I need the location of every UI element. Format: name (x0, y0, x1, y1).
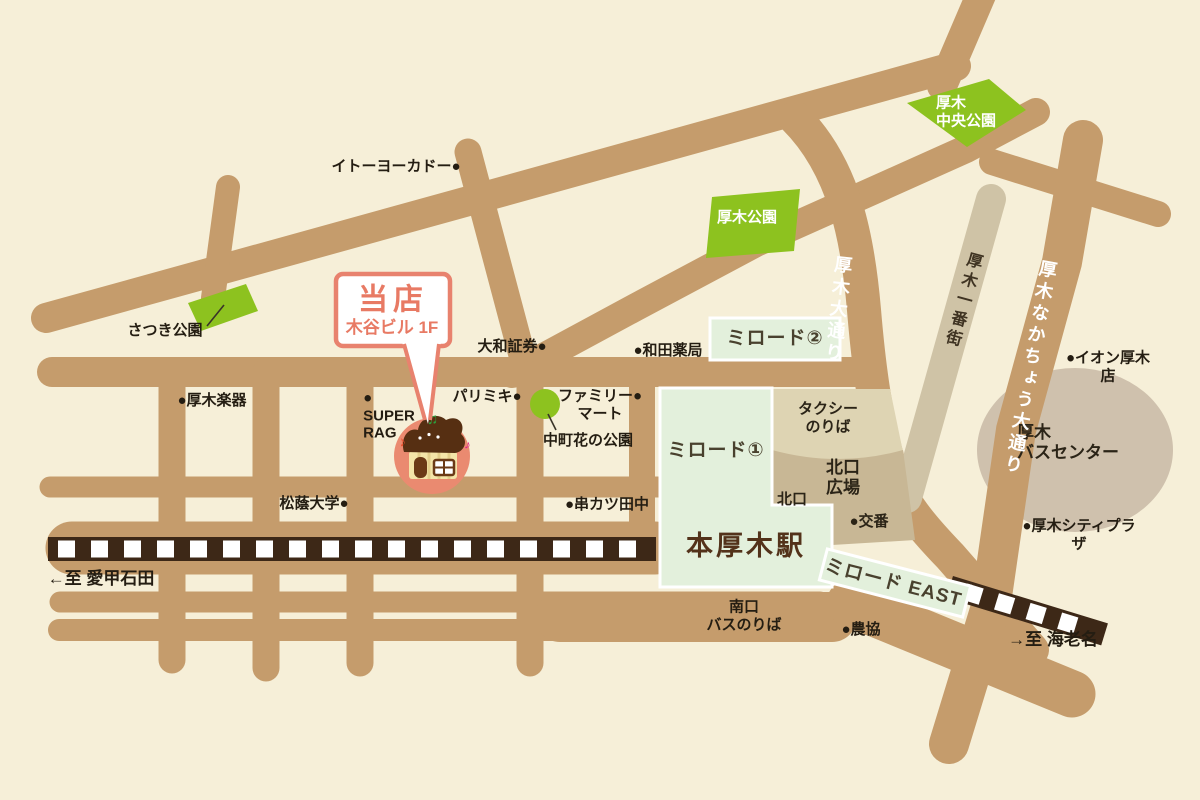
label-minamiguchi-bus: 南口 バスのりば (706, 598, 781, 633)
label-atsugi-city-plaza: ●厚木シティプラザ (1019, 517, 1140, 552)
label-kushikatsu-tanaka: ●串カツ田中 (565, 496, 649, 514)
label-nokyo: ●農協 (841, 621, 880, 639)
label-miload-east: ミロード EAST (822, 556, 964, 613)
label-kitaguchi-hiroba: 北口 広場 (826, 458, 860, 498)
label-kitaguchi: 北口 (777, 491, 807, 509)
label-atsugi-ichibangai: 厚木一番街 (939, 249, 983, 350)
label-miload2: ミロード② (726, 328, 823, 350)
label-atsugi-chuo-park: 厚木 中央公園 (936, 94, 996, 129)
label-honatsugi-station: 本厚木駅 (686, 531, 806, 563)
label-ito-yokado: イトーヨーカドー● (331, 158, 460, 176)
label-to-aikoishida: ←至 愛甲石田 (48, 569, 155, 589)
label-atsugi-gakki: ●厚木楽器 (177, 392, 246, 410)
label-satsuki-park: さつき公園 (127, 322, 202, 340)
label-callout-main: 当店 (358, 282, 428, 317)
label-nakacho-hana-park: 中町花の公園 (543, 432, 633, 450)
label-taxi-noriba: タクシー のりば (798, 400, 858, 435)
label-super-rag: ● SUPER RAG (363, 389, 415, 442)
label-aeon-atsugi: ●イオン厚木店 (1062, 349, 1154, 384)
label-layer: イトーヨーカドー●さつき公園大和証券●●和田薬局●厚木楽器● SUPER RAG… (0, 0, 1200, 800)
label-callout-sub: 木谷ビル 1F (346, 318, 439, 338)
label-atsugi-park: 厚木公園 (717, 209, 777, 227)
access-map: ♪ ♫ ♪ イトーヨーカドー●さつき公園大和証券●●和田薬局●厚木楽器● SUP… (0, 0, 1200, 800)
label-paris-miki: パリミキ● (452, 388, 521, 406)
label-koban: ●交番 (849, 513, 888, 531)
label-atsugi-bus-center: 厚木 バスセンター (1017, 423, 1119, 463)
label-shoin-univ: 松蔭大学● (279, 495, 348, 513)
label-atsugi-odori: 厚木大通り (821, 254, 854, 366)
label-miload1: ミロード① (667, 440, 764, 462)
label-family-mart: ファミリー● マート (558, 387, 642, 422)
label-wada-yakkyoku: ●和田薬局 (633, 342, 702, 360)
label-daiwa-shoken: 大和証券● (477, 338, 546, 356)
label-to-ebina: →至 海老名 (1008, 630, 1098, 650)
